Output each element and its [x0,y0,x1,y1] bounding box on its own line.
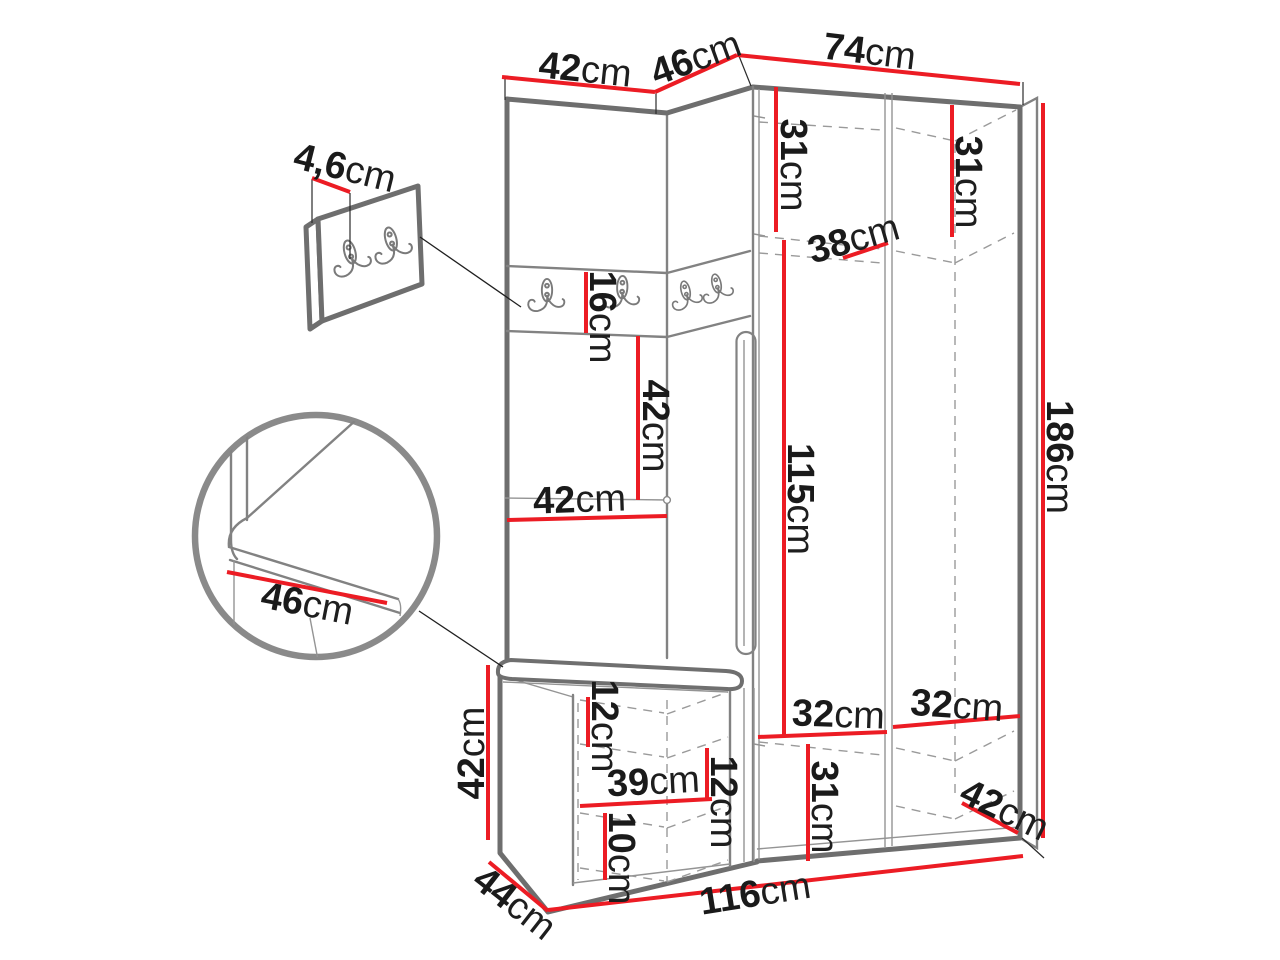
coat-hook-icon [699,271,735,304]
dim-bench-top-clearance: 12cm [583,680,625,773]
dim-left-shelf-width: 32cm [791,692,885,737]
dim-total-height: 186cm [1038,400,1080,514]
dim-panel-width: 42cm [537,44,634,95]
dim-hook-strip-height: 16cm [581,271,623,364]
wall-panel-section [505,87,756,670]
hanger-panel-detail [306,179,521,329]
dim-bench-bottom-clearance: 10cm [600,812,642,905]
dim-bottom-shelf-height: 31cm [803,761,845,854]
dim-right-shelf-width: 32cm [909,682,1005,730]
dim-bench-shelf-width: 39cm [606,759,701,806]
furniture-dimension-diagram: 42cm 46cm 74cm 4,6cm 31cm 31cm 38cm 16cm… [0,0,1280,960]
dim-corner-width: 46cm [645,23,747,94]
coat-hooks [528,271,735,311]
dim-left-top-shelf: 31cm [772,119,814,212]
diagram-canvas: 42cm 46cm 74cm 4,6cm 31cm 31cm 38cm 16cm… [0,0,1280,960]
dim-bench-height: 42cm [451,707,493,800]
coat-hook-icon [668,278,704,311]
dim-mid-section-height: 42cm [634,380,676,473]
dim-mid-section-width: 42cm [532,477,626,522]
dim-hanging-space-height: 115cm [779,443,821,555]
detail-callout-line [419,611,503,667]
dim-rail-depth: 38cm [803,206,904,272]
dim-bench-side-clearance: 12cm [702,756,744,849]
dim-wardrobe-width: 74cm [821,26,918,79]
coat-hook-icon [528,279,564,311]
dim-right-top-shelf: 31cm [947,136,989,229]
